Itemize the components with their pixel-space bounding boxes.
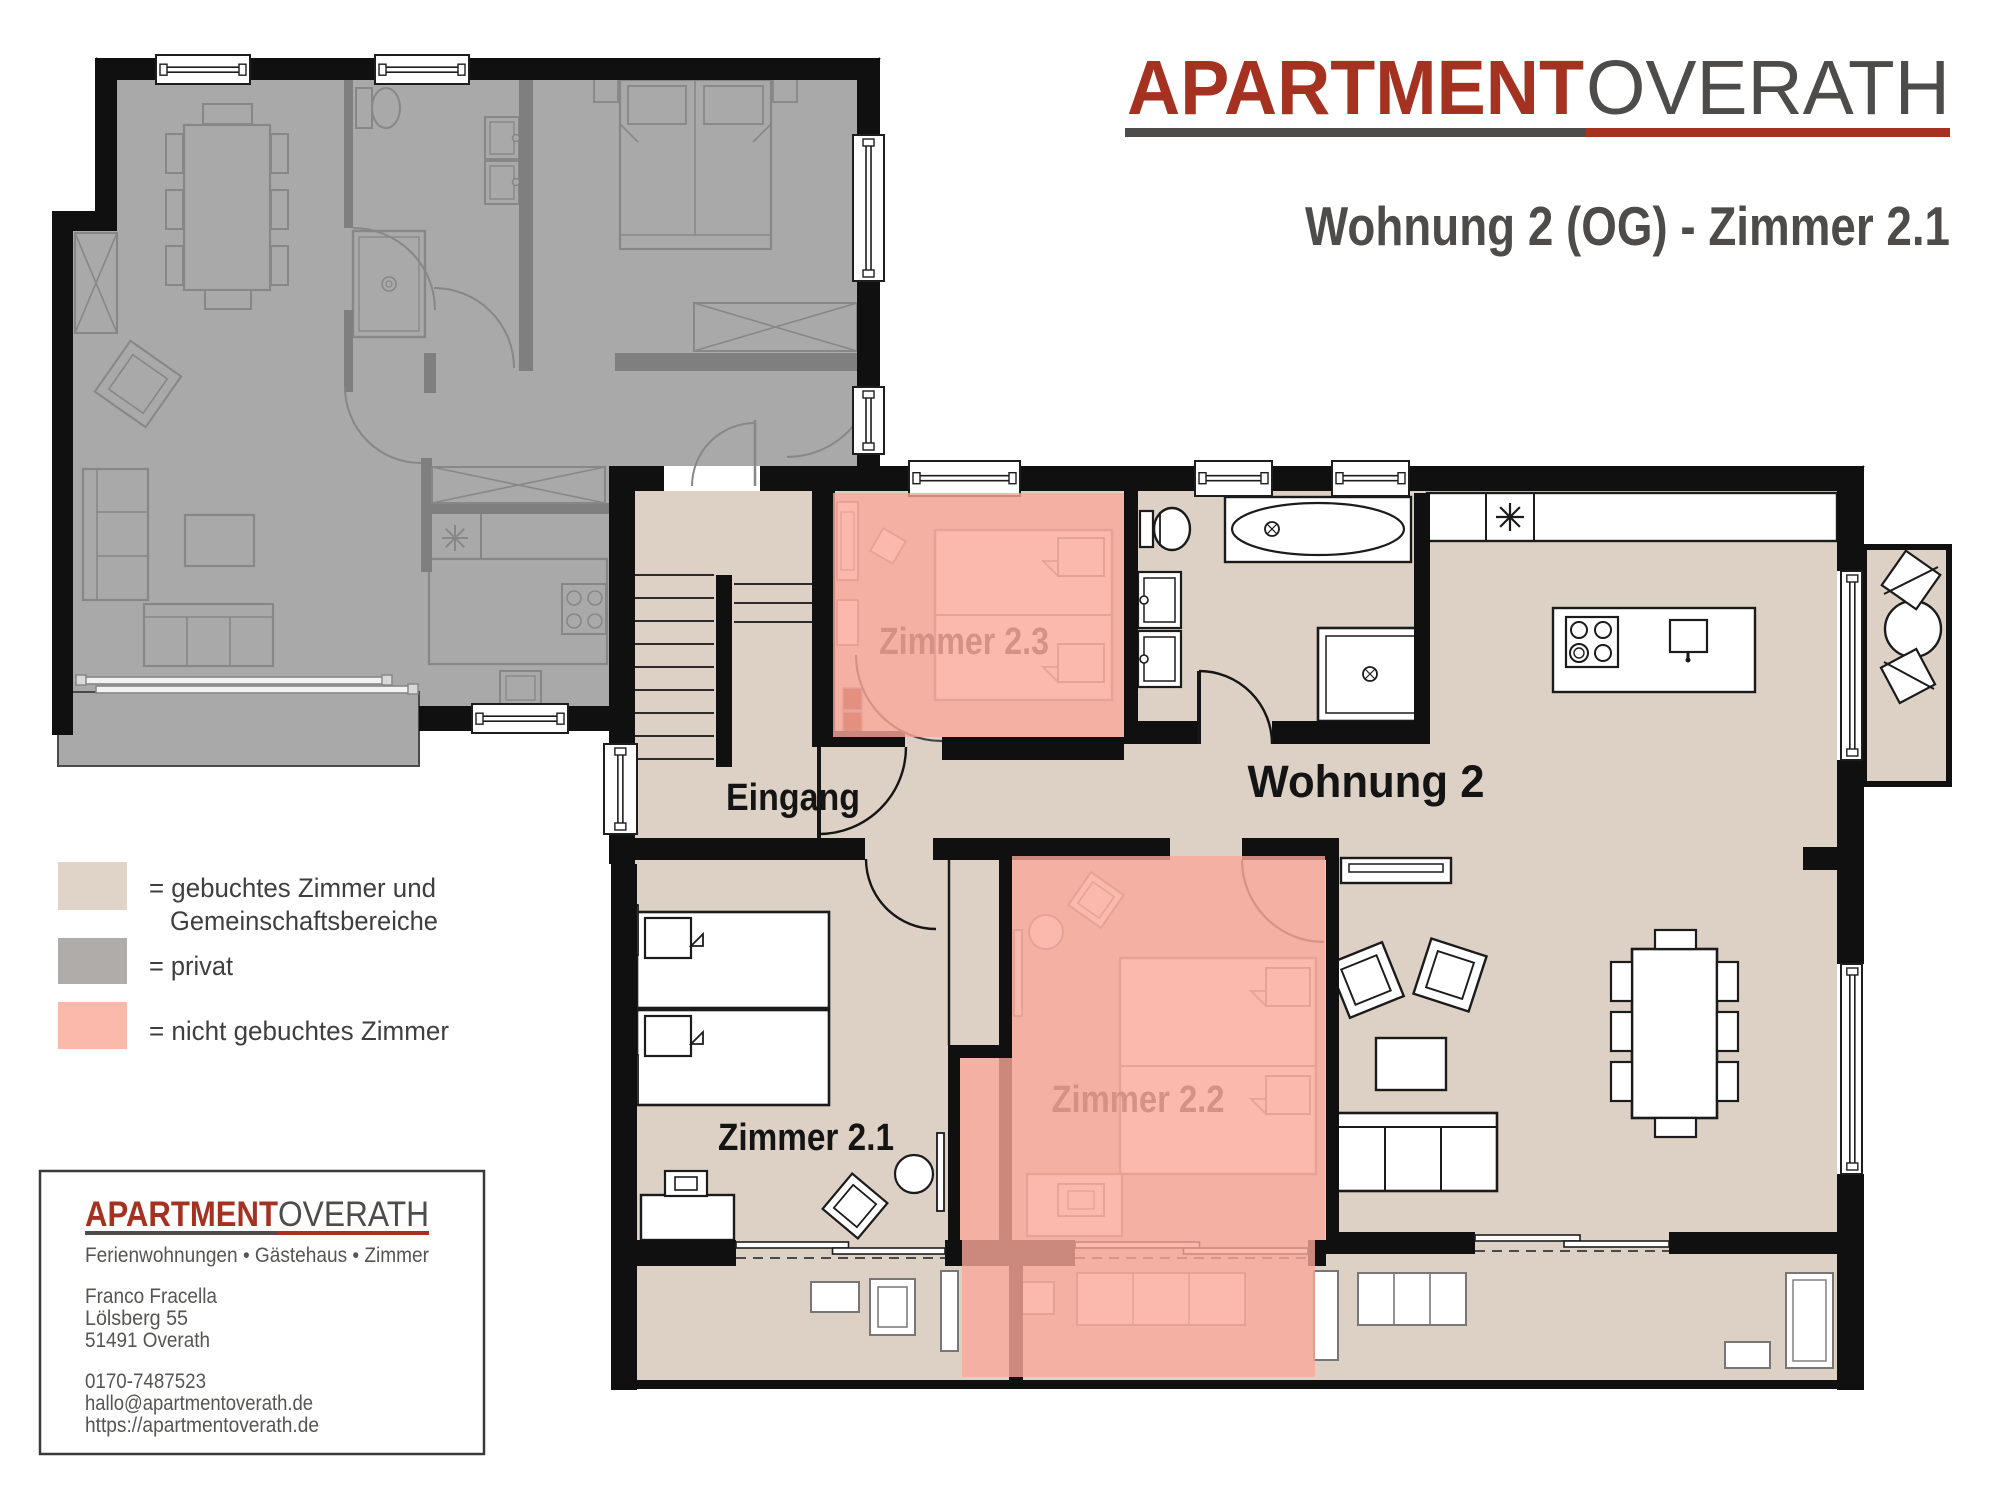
svg-text:Zimmer 2.1: Zimmer 2.1 [718,1117,894,1159]
svg-text:Gemeinschaftsbereiche: Gemeinschaftsbereiche [170,906,438,936]
svg-text:= nicht gebuchtes Zimmer: = nicht gebuchtes Zimmer [149,1016,449,1046]
svg-text:hallo@apartmentoverath.de: hallo@apartmentoverath.de [85,1392,313,1415]
svg-text:APARTMENT: APARTMENT [1127,45,1584,131]
svg-text:= gebuchtes Zimmer und: = gebuchtes Zimmer und [149,873,436,903]
svg-text:OVERATH: OVERATH [278,1195,429,1234]
svg-text:Wohnung 2: Wohnung 2 [1248,756,1485,807]
svg-text:Ferienwohnungen • Gästehaus •: Ferienwohnungen • Gästehaus • Zimmer [85,1243,429,1267]
svg-text:Franco Fracella: Franco Fracella [85,1285,217,1308]
svg-text:51491 Overath: 51491 Overath [85,1329,210,1352]
svg-text:Eingang: Eingang [726,777,860,819]
svg-text:APARTMENT: APARTMENT [85,1195,278,1234]
svg-text:https://apartmentoverath.de: https://apartmentoverath.de [85,1414,319,1437]
svg-text:0170-7487523: 0170-7487523 [85,1370,206,1393]
svg-text:= privat: = privat [149,951,233,981]
svg-text:Wohnung 2 (OG) - Zimmer 2.1: Wohnung 2 (OG) - Zimmer 2.1 [1305,195,1950,257]
svg-text:Lölsberg 55: Lölsberg 55 [85,1307,188,1330]
svg-text:OVERATH: OVERATH [1586,45,1950,131]
